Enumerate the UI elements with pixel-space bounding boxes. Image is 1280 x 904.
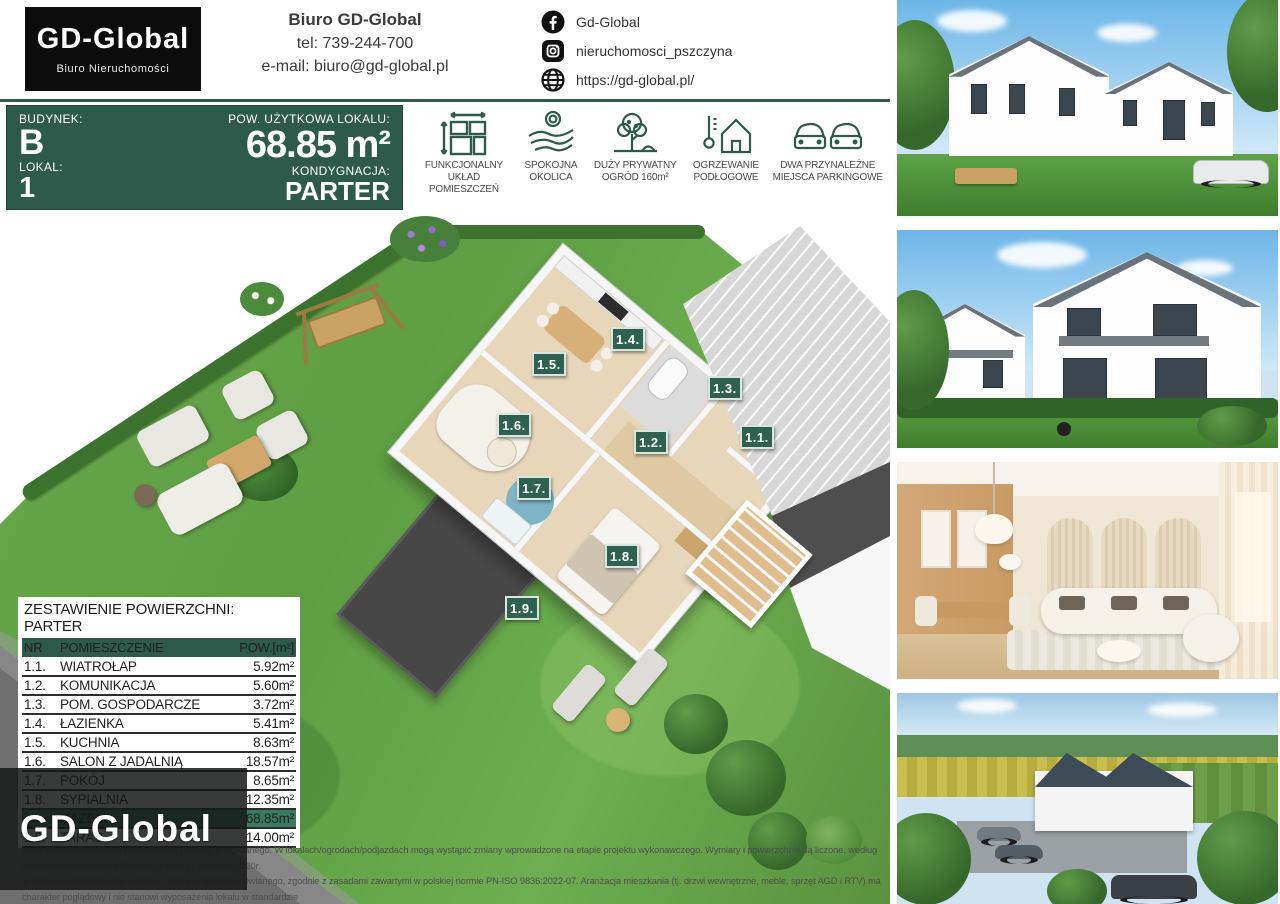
room-badge-16: 1.6. — [497, 413, 531, 437]
room-badge-11: 1.1. — [740, 425, 774, 449]
window — [1009, 84, 1025, 114]
window — [1201, 102, 1215, 126]
window — [971, 84, 987, 114]
header-divider — [0, 99, 890, 102]
room-badge-15: 1.5. — [532, 352, 566, 376]
window — [1067, 308, 1101, 336]
lokal-value: 1 — [19, 174, 83, 202]
table-row-cell: 5.41m² — [226, 714, 296, 733]
table-row-cell: 1.3. — [22, 695, 58, 714]
contact-company: Biuro GD-Global — [225, 10, 485, 30]
coffee-table — [1097, 640, 1141, 662]
table-row: 1.2.KOMUNIKACJA5.60m² — [22, 676, 296, 695]
col-pomieszczenie: POMIESZCZENIE — [58, 638, 226, 657]
property-flyer: GD-Global Biuro Nieruchomości Biuro GD-G… — [0, 0, 1280, 904]
table-row-cell: KOMUNIKACJA — [58, 676, 226, 695]
cloud — [937, 10, 1007, 32]
social-row-instagram[interactable]: nieruchomosci_pszczyna — [541, 37, 732, 65]
logo: GD-Global Biuro Nieruchomości — [25, 7, 201, 91]
contact-block: Biuro GD-Global tel: 739-244-700 e-mail:… — [225, 10, 485, 81]
room-badge-19: 1.9. — [505, 596, 539, 620]
kondygnacja-value: PARTER — [228, 178, 390, 205]
feature-garden-label: DUŻY PRYWATNY OGRÓD 160m² — [594, 160, 677, 184]
calm-area-icon — [526, 110, 576, 156]
armchair — [1183, 614, 1239, 662]
budynek-value: B — [19, 126, 83, 160]
room-badge-13: 1.3. — [708, 376, 742, 400]
table-row: 1.3.POM. GOSPODARCZE3.72m² — [22, 695, 296, 714]
photo-exterior-garden — [897, 230, 1278, 448]
photo-aerial-estate — [897, 693, 1278, 904]
garden-tree — [706, 740, 786, 816]
garden-sofa-set — [130, 376, 310, 556]
window — [1123, 100, 1137, 126]
pendant-lamp — [975, 514, 1013, 544]
table-row-cell: KUCHNIA — [58, 733, 226, 752]
table-row-cell: WIATROŁAP — [58, 657, 226, 676]
col-pow: POW.[m²] — [226, 638, 296, 657]
watermark-overlay: GD-Global — [0, 768, 247, 890]
logo-title: GD-Global — [37, 23, 189, 56]
unit-banner-right: POW. UŻYTKOWA LOKALU: 68.85 m² KONDYGNAC… — [228, 112, 390, 203]
globe-icon — [541, 68, 565, 92]
cloud — [1097, 24, 1157, 42]
table-row: 1.4.ŁAZIENKA5.41m² — [22, 714, 296, 733]
table-row-cell: 1.1. — [22, 657, 58, 676]
logo-subtitle: Biuro Nieruchomości — [57, 63, 170, 75]
cushion — [1111, 596, 1137, 610]
watermark-logo-text: GD-Global — [0, 808, 212, 850]
sky — [897, 693, 1278, 739]
table-row-cell: 1.4. — [22, 714, 58, 733]
feature-calm-area: SPOKOJNA OKOLICA — [515, 110, 587, 184]
unit-banner: BUDYNEK: B LOKAL: 1 POW. UŻYTKOWA LOKALU… — [6, 105, 403, 210]
feature-floor-plan: FUNKCJONALNY UKŁAD POMIESZCZEŃ — [413, 110, 515, 196]
feature-garden: DUŻY PRYWATNY OGRÓD 160m² — [587, 110, 683, 184]
photo-interior-living — [897, 462, 1278, 679]
pendant-cord — [993, 462, 995, 520]
parked-car — [977, 827, 1021, 841]
cushion — [1163, 596, 1189, 610]
col-nr: NR — [22, 638, 58, 657]
table-header-row: NR POMIESZCZENIE POW.[m²] — [22, 638, 296, 657]
room-badge-18: 1.8. — [605, 544, 639, 568]
table-row-cell: 3.72m² — [226, 695, 296, 714]
cloud — [957, 699, 1017, 713]
feature-floor-plan-label: FUNKCJONALNY UKŁAD POMIESZCZEŃ — [413, 160, 515, 196]
window — [983, 360, 1003, 388]
table-row-cell: POM. GOSPODARCZE — [58, 695, 226, 714]
art-frame — [921, 510, 951, 568]
room-badge-17: 1.7. — [517, 476, 551, 500]
tree — [1047, 869, 1107, 904]
room-badge-14: 1.4. — [611, 327, 645, 351]
cloud — [997, 242, 1087, 268]
window — [1059, 88, 1075, 116]
area-table-title: ZESTAWIENIE POWIERZCHNI: PARTER — [22, 599, 296, 638]
table-row: 1.1.WIATROŁAP5.92m² — [22, 657, 296, 676]
floor-plan-icon — [439, 110, 489, 156]
features-row: FUNKCJONALNY UKŁAD POMIESZCZEŃ SPOKOJNA … — [405, 106, 889, 214]
tree — [1197, 811, 1278, 904]
parked-car — [995, 845, 1043, 859]
facebook-icon — [541, 10, 565, 34]
website-url[interactable]: https://gd-global.pl/ — [576, 72, 694, 88]
flowers-purple — [390, 216, 460, 262]
cushion — [1059, 596, 1085, 610]
dining-chair — [1009, 596, 1031, 626]
social-row-facebook[interactable]: Gd-Global — [541, 8, 732, 36]
table-row-cell: ŁAZIENKA — [58, 714, 226, 733]
room-badge-12: 1.2. — [634, 430, 668, 454]
window — [1163, 100, 1185, 140]
garden-tree — [664, 694, 728, 754]
garden-table — [955, 168, 1017, 184]
pendant-lamp-small — [999, 554, 1021, 570]
window-light — [1235, 492, 1271, 622]
photo-exterior-front — [897, 0, 1278, 216]
instagram-handle[interactable]: nieruchomosci_pszczyna — [576, 43, 732, 59]
feature-heating-label: OGRZEWANIE PODŁOGOWE — [693, 160, 759, 184]
dining-chair — [915, 596, 937, 626]
feature-parking: DWA PRZYNALEŻNE MIEJSCA PARKINGOWE — [768, 110, 887, 184]
dining-table — [925, 602, 1021, 618]
table-row-cell: 5.92m² — [226, 657, 296, 676]
bbq-grill — [1057, 422, 1071, 436]
floor-heating-icon — [700, 110, 752, 156]
parked-car — [1193, 160, 1269, 184]
feature-parking-label: DWA PRZYNALEŻNE MIEJSCA PARKINGOWE — [773, 160, 883, 184]
driving-car — [1111, 875, 1197, 899]
shrub — [1197, 406, 1267, 446]
instagram-icon — [541, 39, 565, 63]
social-block: Gd-Global nieruchomosci_pszczyna https:/… — [541, 8, 732, 95]
pow-value: 68.85 m² — [228, 126, 390, 164]
feature-heating: OGRZEWANIE PODŁOGOWE — [683, 110, 768, 184]
feature-calm-area-label: SPOKOJNA OKOLICA — [525, 160, 578, 184]
table-row-cell: 1.2. — [22, 676, 58, 695]
table-row-cell: 8.63m² — [226, 733, 296, 752]
parking-icon — [792, 110, 864, 156]
balcony — [1059, 336, 1209, 346]
garden-tree-icon — [610, 110, 660, 156]
contact-email[interactable]: e-mail: biuro@gd-global.pl — [225, 58, 485, 76]
facebook-handle[interactable]: Gd-Global — [576, 14, 640, 30]
hedge-top — [425, 225, 705, 239]
flowers-white — [240, 282, 284, 316]
table-row-cell: 1.5. — [22, 733, 58, 752]
social-row-website[interactable]: https://gd-global.pl/ — [541, 66, 732, 94]
window — [1153, 304, 1197, 336]
table-row-cell: 5.60m² — [226, 676, 296, 695]
table-row: 1.5.KUCHNIA8.63m² — [22, 733, 296, 752]
cloud — [1147, 703, 1217, 717]
contact-phone[interactable]: tel: 739-244-700 — [225, 35, 485, 53]
unit-banner-left: BUDYNEK: B LOKAL: 1 — [19, 112, 83, 203]
treeline — [897, 735, 1278, 759]
garden-round-table — [606, 708, 630, 732]
